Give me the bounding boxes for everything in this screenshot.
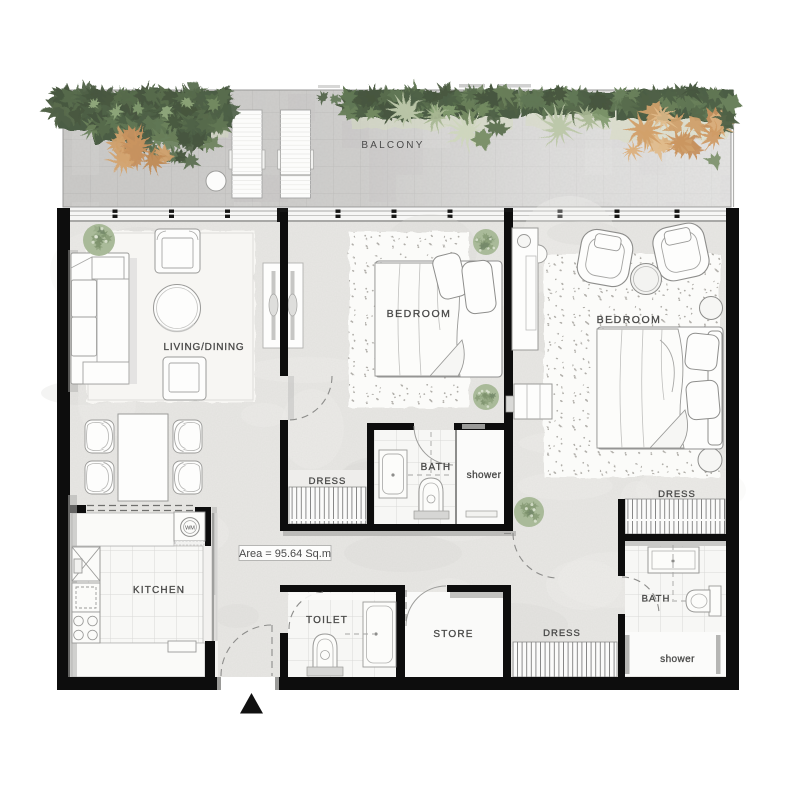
svg-text:BEDROOM: BEDROOM xyxy=(597,314,662,326)
svg-text:DRESS: DRESS xyxy=(658,489,696,500)
svg-text:Area = 95.64 Sq.m: Area = 95.64 Sq.m xyxy=(239,548,331,560)
svg-text:BATH: BATH xyxy=(642,594,671,605)
svg-text:LIVING/DINING: LIVING/DINING xyxy=(164,342,245,353)
svg-text:KITCHEN: KITCHEN xyxy=(133,585,185,596)
svg-text:STORE: STORE xyxy=(433,629,473,640)
svg-text:DRESS: DRESS xyxy=(309,476,347,487)
svg-text:WM: WM xyxy=(185,526,195,532)
svg-text:BATH: BATH xyxy=(421,462,452,473)
svg-text:BEDROOM: BEDROOM xyxy=(387,308,452,320)
svg-text:shower: shower xyxy=(467,470,502,481)
svg-text:BALCONY: BALCONY xyxy=(361,140,424,151)
svg-text:DRESS: DRESS xyxy=(543,628,581,639)
svg-text:TOILET: TOILET xyxy=(306,615,348,626)
svg-text:shower: shower xyxy=(660,654,695,665)
